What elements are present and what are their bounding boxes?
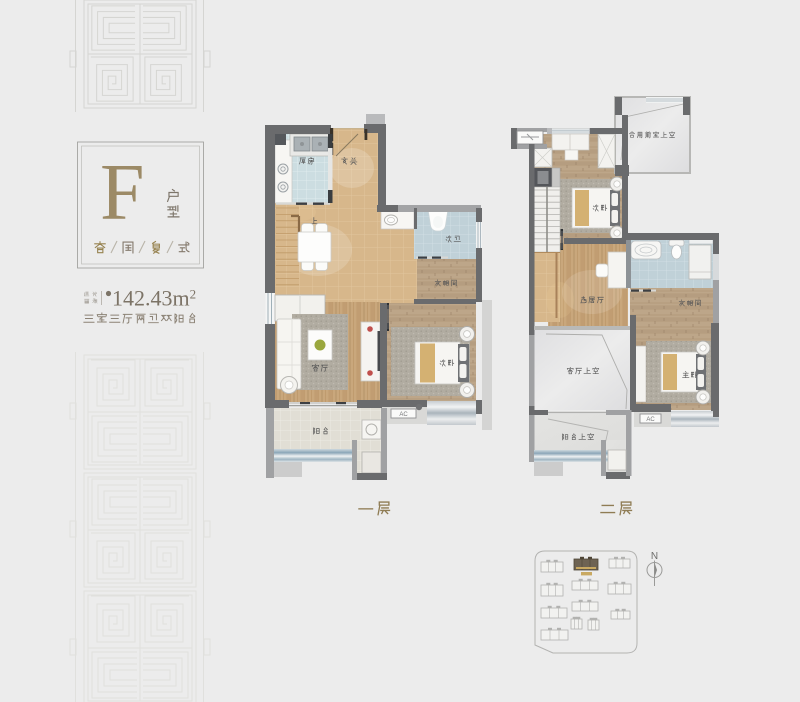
svg-text:N: N <box>651 551 658 562</box>
svg-text:F: F <box>100 149 145 237</box>
svg-text:AC: AC <box>646 417 655 423</box>
svg-text:142.43m2: 142.43m2 <box>112 286 196 311</box>
svg-text:AC: AC <box>399 412 408 418</box>
